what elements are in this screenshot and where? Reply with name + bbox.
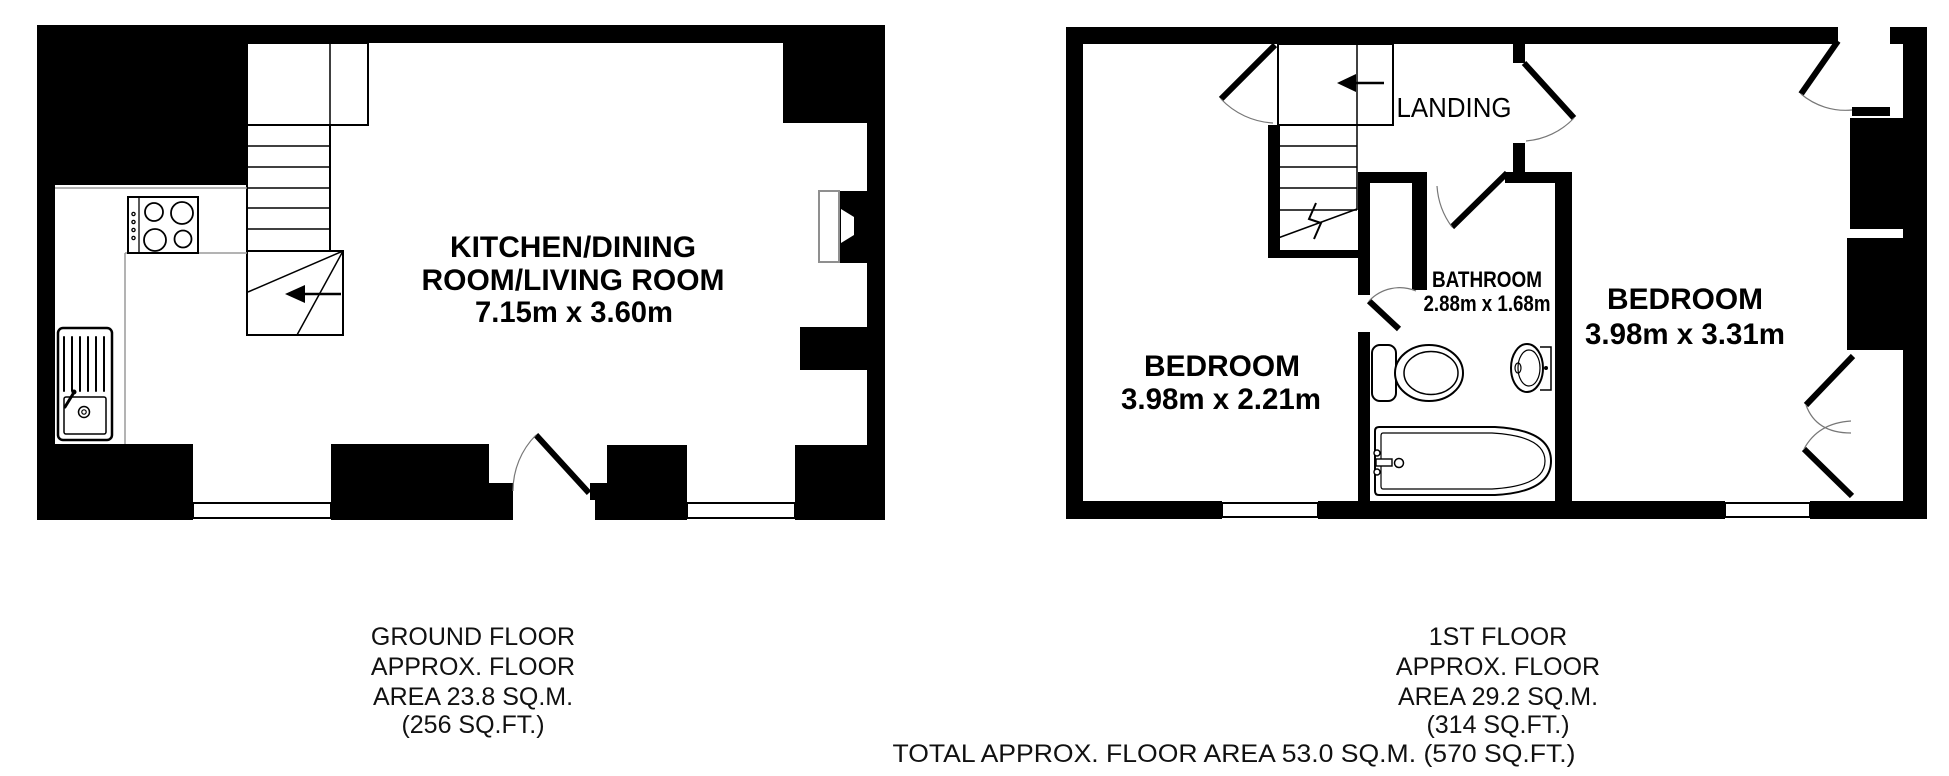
first-floor-plan: LANDING BATHROOM 2.88m x 1.68m BEDROOM 3… [1066,27,1927,519]
kitchen-dimensions: 7.15m x 3.60m [475,296,673,329]
total-area-caption: TOTAL APPROX. FLOOR AREA 53.0 SQ.M. (570… [893,740,1576,768]
wash-basin-icon [1511,344,1551,392]
staircase [1278,44,1393,239]
ground-floor-plan: KITCHEN/DINING ROOM/LIVING ROOM 7.15m x … [37,25,885,520]
kitchen-sink-icon [58,328,112,440]
staircase [247,43,368,335]
caption-line: 1ST FLOOR [1429,623,1567,651]
door [513,435,589,493]
floorplan-page: KITCHEN/DINING ROOM/LIVING ROOM 7.15m x … [0,0,1949,776]
caption-line: (256 SQ.FT.) [401,711,544,739]
caption-line: AREA 23.8 SQ.M. [373,683,573,711]
floorplan-graphic: KITCHEN/DINING ROOM/LIVING ROOM 7.15m x … [0,0,1949,776]
door [1524,63,1574,141]
caption-line: APPROX. FLOOR [1396,653,1600,681]
caption-line: (314 SQ.FT.) [1426,711,1569,739]
window [193,503,331,518]
bay-window-doors [1804,356,1853,496]
ground-floor-caption: GROUND FLOOR APPROX. FLOOR AREA 23.8 SQ.… [371,623,575,739]
bedroom-left-dimensions: 3.98m x 2.21m [1121,383,1321,416]
toilet-icon [1372,345,1463,401]
window [1725,503,1810,517]
landing-label: LANDING [1397,92,1512,123]
bedroom-left-label: BEDROOM [1144,350,1300,383]
door [1369,288,1416,329]
door [1801,41,1852,110]
first-floor-caption: 1ST FLOOR APPROX. FLOOR AREA 29.2 SQ.M. … [1396,623,1600,739]
bathroom-label: BATHROOM [1432,267,1542,292]
window [1222,503,1318,517]
door [1437,173,1507,227]
caption-line: AREA 29.2 SQ.M. [1398,683,1598,711]
window [819,191,867,263]
caption-line: APPROX. FLOOR [371,653,575,681]
caption-line: GROUND FLOOR [371,623,575,651]
hob-icon [128,197,198,253]
door [1221,45,1275,123]
bathroom-dimensions: 2.88m x 1.68m [1424,291,1551,316]
window [687,503,795,518]
kitchen-label-line1: KITCHEN/DINING [450,231,696,264]
kitchen-label-line2: ROOM/LIVING ROOM [422,264,725,297]
bathtub-icon [1374,427,1551,495]
bedroom-right-dimensions: 3.98m x 3.31m [1585,318,1785,351]
bedroom-right-label: BEDROOM [1607,283,1763,316]
